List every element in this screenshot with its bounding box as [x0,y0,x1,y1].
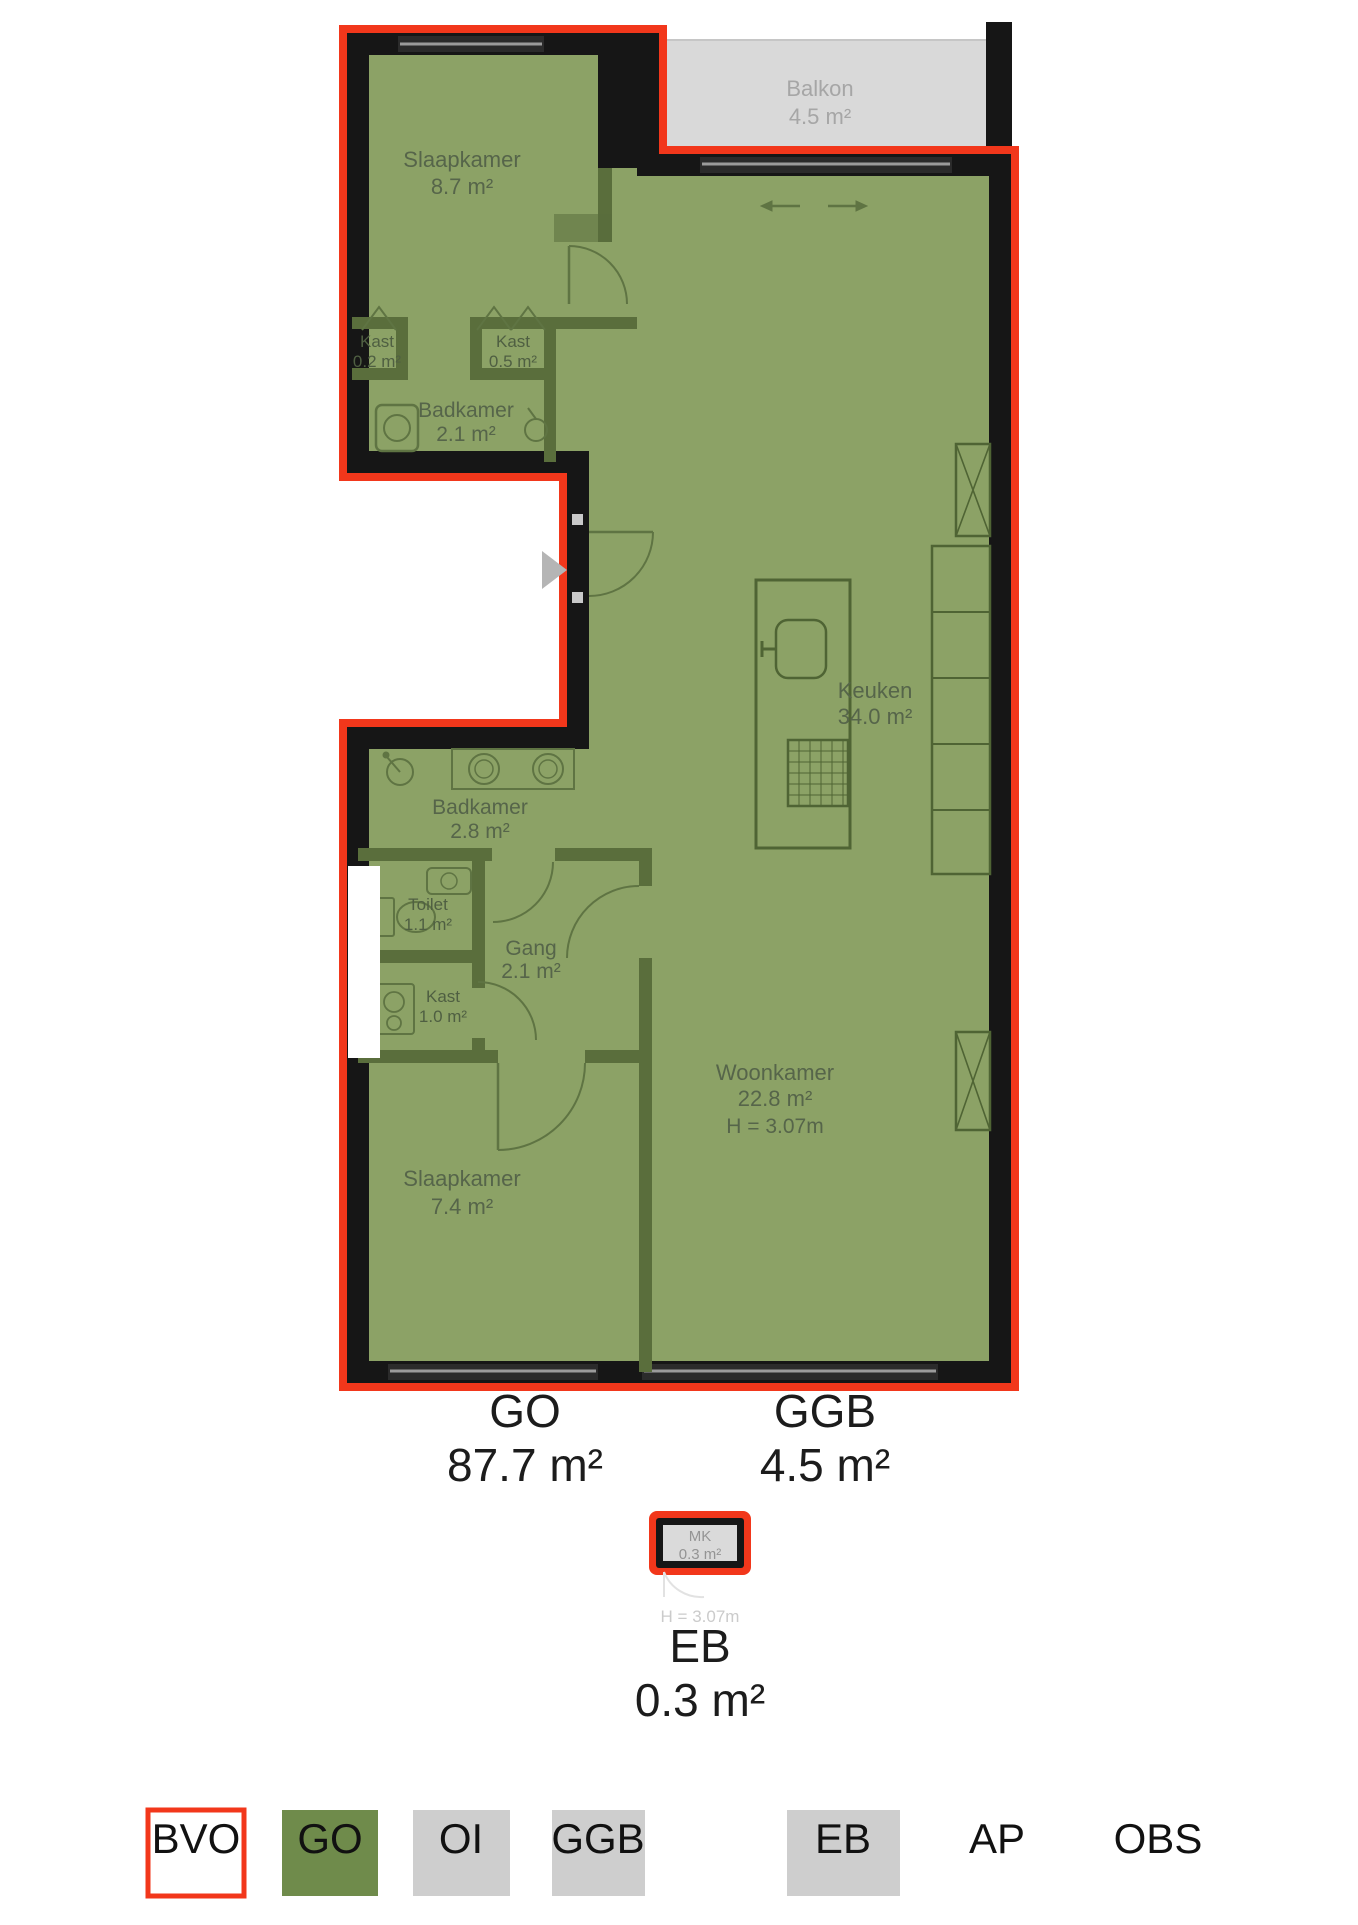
room-label-woonkamer: Woonkamer [716,1060,834,1085]
room-label-kast3: Kast [426,987,460,1006]
room-label-mk: MK [689,1528,712,1545]
total-eb-label: EB [669,1620,730,1672]
legend-label-ggb: GGB [551,1815,644,1862]
room-area-toilet: 1.1 m² [404,915,453,934]
balcony-right-wall [986,22,1012,148]
area-totals: GO 87.7 m² GGB 4.5 m² [447,1385,890,1491]
wall [639,958,652,1372]
room-label-gang: Gang [505,937,556,960]
legend-item-ap: AP [969,1815,1025,1862]
legend-label-obs: OBS [1114,1815,1203,1862]
wall [472,861,485,958]
room-area-slaapkamer1: 8.7 m² [431,174,493,199]
wall [556,317,637,329]
total-go-label: GO [489,1385,561,1437]
room-area-slaapkamer2: 7.4 m² [431,1194,493,1219]
room-area-kast2: 0.5 m² [489,352,538,371]
legend-label-bvo: BVO [152,1815,241,1862]
total-ggb-label: GGB [774,1385,876,1437]
legend-item-ggb: GGB [551,1810,645,1896]
duct-step [554,214,612,242]
mk-box: MK 0.3 m² H = 3.07m EB 0.3 m² [635,1511,765,1726]
legend-label-ap: AP [969,1815,1025,1862]
service-shaft [348,866,380,1058]
legend-item-oi: OI [413,1810,510,1896]
balcony: Balkon 4.5 m² [650,22,1012,148]
room-area-badkamer2: 2.8 m² [450,820,510,843]
room-area-mk: 0.3 m² [679,1546,722,1563]
room-label-keuken: Keuken [838,678,913,703]
room-area-woonkamer: 22.8 m² [738,1086,813,1111]
total-go-value: 87.7 m² [447,1439,603,1491]
wall [544,317,556,380]
wall [639,848,652,886]
room-area-kast1: 0.2 m² [353,352,402,371]
mk-door-arc [664,1572,704,1597]
room-label-kast2: Kast [496,332,530,351]
legend-item-obs: OBS [1114,1815,1203,1862]
room-label-slaapkamer1: Slaapkamer [403,147,520,172]
wall-column-top [598,44,652,168]
legend-item-eb: EB [787,1810,900,1896]
entrance-hinge-mark [572,592,583,603]
room-label-balkon: Balkon [786,76,853,101]
room-label-badkamer2: Badkamer [432,796,528,819]
floor-plan-canvas: Balkon 4.5 m² [0,0,1358,1920]
wall [358,848,492,861]
total-eb-value: 0.3 m² [635,1674,765,1726]
legend-item-go: GO [282,1810,378,1896]
total-ggb-value: 4.5 m² [760,1439,890,1491]
shower-head [383,752,389,758]
wall [585,1050,639,1063]
legend-label-oi: OI [439,1815,483,1862]
room-label-toilet: Toilet [408,895,448,914]
room-label-slaapkamer2: Slaapkamer [403,1166,520,1191]
room-area-balkon: 4.5 m² [789,104,851,129]
room-label-badkamer1: Badkamer [418,399,514,422]
room-area-kast3: 1.0 m² [419,1007,468,1026]
legend-label-eb: EB [815,1815,871,1862]
wall [555,848,639,861]
wall [472,963,485,988]
legend-label-go: GO [297,1815,362,1862]
wall [544,380,556,462]
legend: BVO GO OI GGB EB AP OBS [148,1810,1202,1896]
room-area-gang: 2.1 m² [501,960,561,983]
entrance-hinge-mark [572,514,583,525]
room-label-kast1: Kast [360,332,394,351]
room-area-badkamer1: 2.1 m² [436,423,496,446]
room-area-keuken: 34.0 m² [838,704,913,729]
legend-item-bvo: BVO [148,1810,244,1896]
room-height-woonkamer: H = 3.07m [726,1115,823,1138]
